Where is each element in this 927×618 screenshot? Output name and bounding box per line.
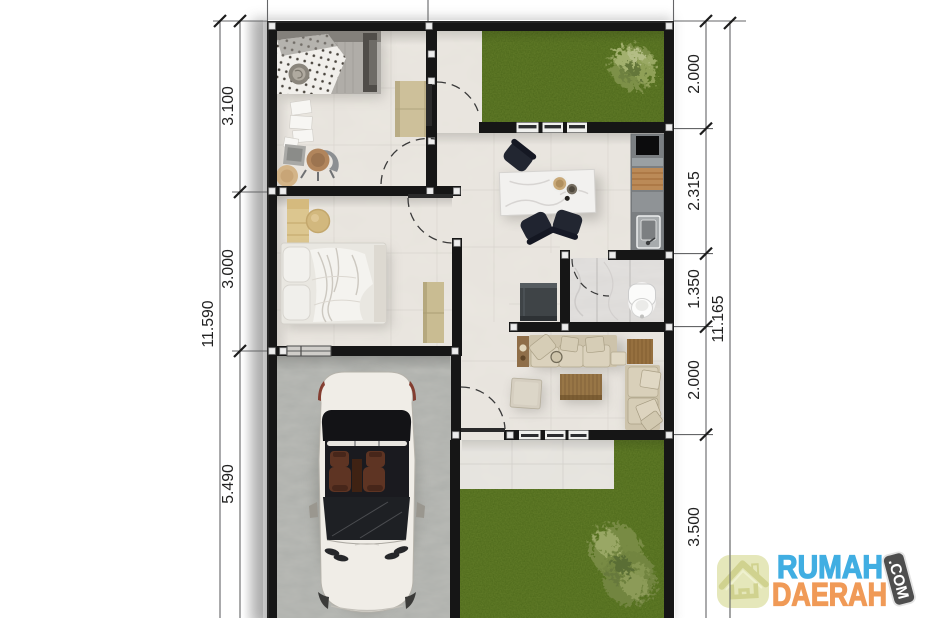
svg-text:11.165: 11.165 — [710, 295, 727, 342]
svg-text:5.490: 5.490 — [220, 464, 237, 504]
svg-text:2.000: 2.000 — [686, 54, 703, 94]
svg-text:11.590: 11.590 — [200, 300, 217, 347]
svg-text:3.000: 3.000 — [220, 249, 237, 289]
svg-text:3.100: 3.100 — [220, 86, 237, 126]
svg-text:2.000: 2.000 — [686, 360, 703, 400]
svg-text:DAERAH: DAERAH — [772, 577, 887, 613]
svg-text:1.350: 1.350 — [686, 269, 703, 309]
svg-text:2.315: 2.315 — [686, 171, 703, 211]
svg-text:3.500: 3.500 — [686, 507, 703, 547]
